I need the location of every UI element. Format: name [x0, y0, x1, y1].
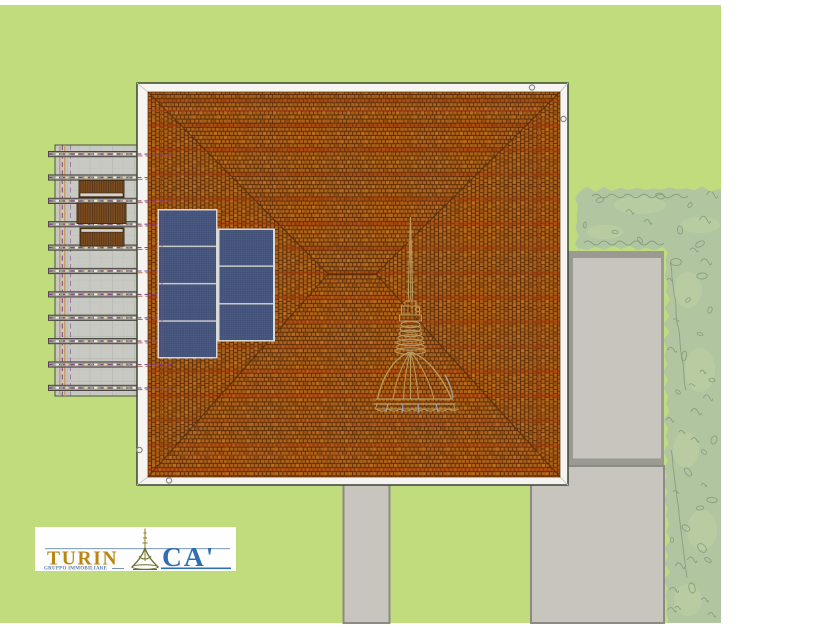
svg-text:GRUPPO IMMOBILIARE: GRUPPO IMMOBILIARE	[44, 567, 108, 572]
svg-text:CA': CA'	[162, 541, 215, 572]
